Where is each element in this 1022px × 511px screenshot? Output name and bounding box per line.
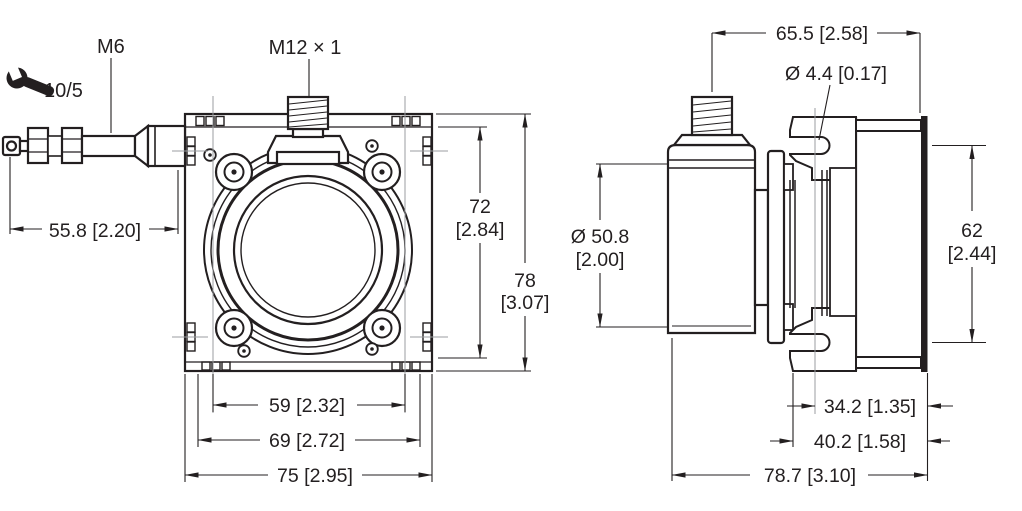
- m12-connector-side: [674, 97, 750, 145]
- rod-cone: [135, 126, 148, 166]
- dim-rod-length-label: 55.8 [2.20]: [49, 220, 141, 242]
- connector-thread-label: M12 × 1: [269, 37, 342, 59]
- hex-nut-2: [62, 128, 82, 163]
- m12-connector-front: [288, 97, 328, 137]
- dim-overall-depth-label: 78.7 [3.10]: [764, 465, 856, 487]
- mounting-hole-label: Ø 4.4 [0.17]: [785, 63, 887, 85]
- side-neck: [755, 190, 768, 305]
- member-bottom: [856, 357, 921, 368]
- dim-bracket-to-flange-label: 40.2 [1.58]: [814, 431, 906, 453]
- dim-body-diameter-mm: Ø 50.8: [571, 226, 630, 248]
- dim-mount-height-mm: 72: [469, 196, 491, 218]
- dim-overall-width-label: 75 [2.95]: [277, 465, 353, 487]
- dim-front-heights: [436, 114, 531, 371]
- rod-gland: [148, 126, 185, 166]
- connector-mount: [268, 136, 348, 164]
- dim-tab-width-label: 69 [2.72]: [269, 430, 345, 452]
- threaded-rod: [82, 136, 135, 156]
- mounting-plate: [921, 116, 928, 372]
- technical-drawing: M6 10/5 M12 × 1 Ø 4.4 [0.17] 55.8 [2.20]…: [0, 0, 1022, 511]
- side-barrel: [668, 145, 755, 333]
- bracket-arm-bottom: [790, 308, 856, 371]
- dim-slot-spacing-label: 59 [2.32]: [269, 395, 345, 417]
- dim-slot-to-flange-label: 34.2 [1.35]: [824, 396, 916, 418]
- hex-nut-1: [28, 128, 48, 163]
- dim-slot-distance-mm: 62: [961, 220, 983, 242]
- bracket-section-lines: [790, 168, 856, 316]
- dim-body-diameter-in: [2.00]: [576, 249, 625, 271]
- rod-thread-label: M6: [97, 36, 125, 58]
- side-flange: [768, 151, 784, 343]
- wrench-size-label: 10/5: [44, 80, 83, 102]
- member-top: [856, 120, 921, 131]
- rod-eyelet-hole: [7, 142, 16, 151]
- wire-rod-assembly: [3, 126, 185, 166]
- dim-mount-height-in: [2.84]: [456, 219, 505, 241]
- dim-overall-height-mm: 78: [514, 270, 536, 292]
- side-view: [668, 97, 928, 372]
- dim-overall-height-in: [3.07]: [501, 292, 550, 314]
- dim-slot-distance-in: [2.44]: [948, 243, 997, 265]
- dim-connector-depth-label: 65.5 [2.58]: [776, 23, 868, 45]
- drawing-svg: M6 10/5 M12 × 1 Ø 4.4 [0.17] 55.8 [2.20]…: [0, 0, 1022, 511]
